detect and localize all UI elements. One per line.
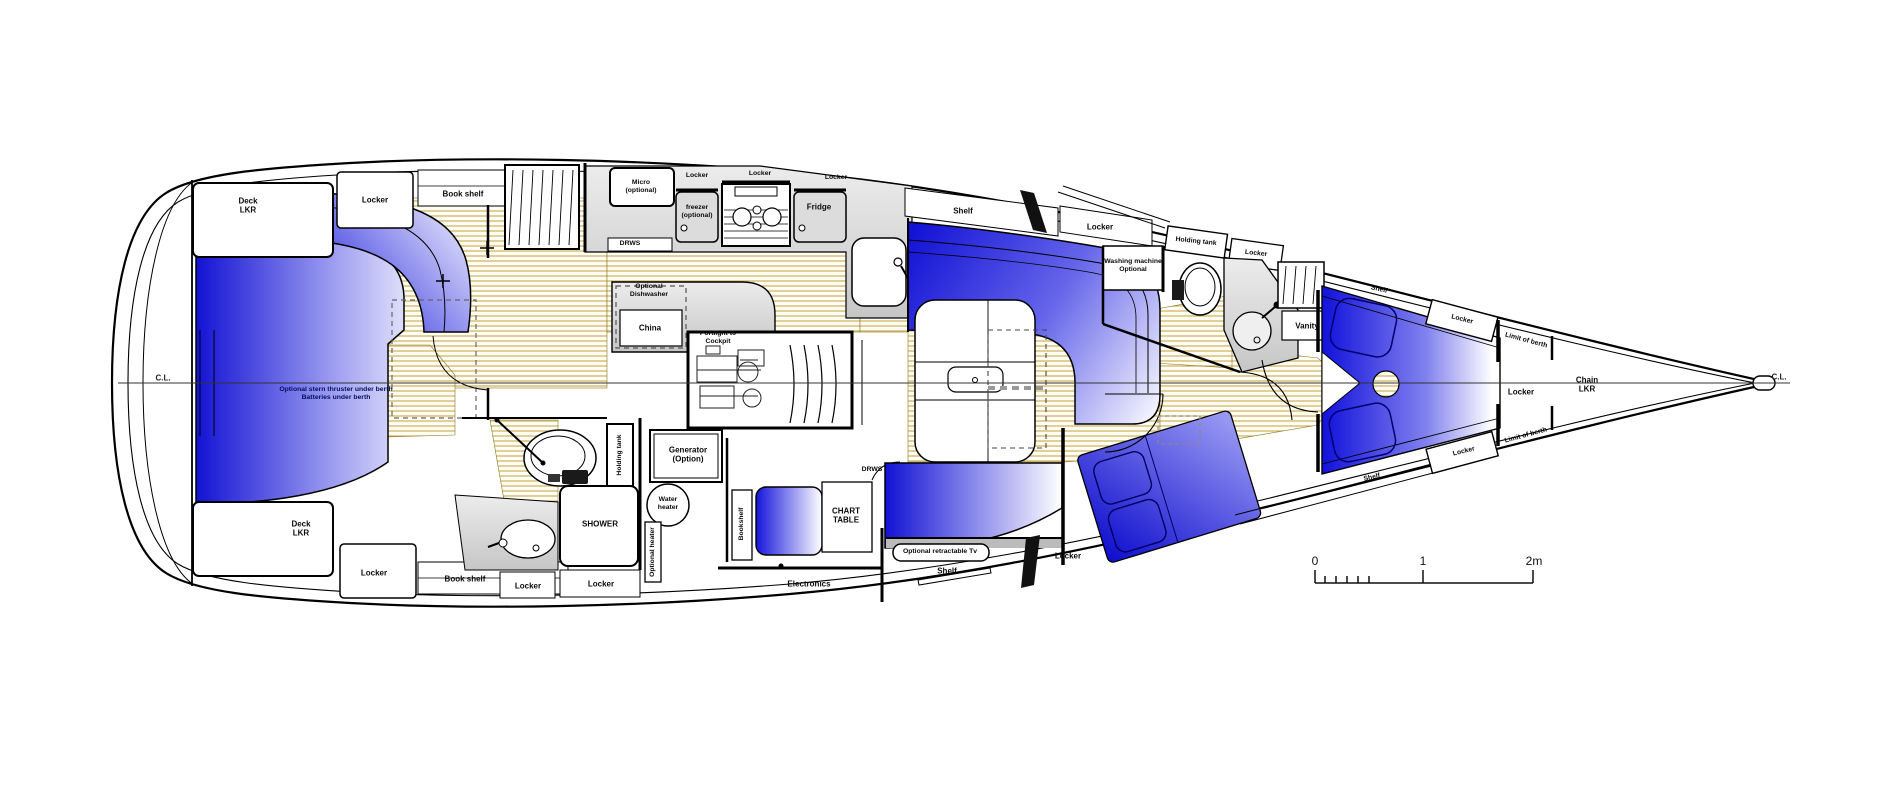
- locker-box: [560, 570, 640, 597]
- yacht-interior-plan: Deck LKR Locker Book shelf Optional ster…: [0, 0, 1900, 800]
- deck-locker-top-box: [193, 183, 333, 257]
- head-sink: [501, 520, 555, 558]
- chart-table-box: [822, 482, 872, 552]
- scale-bar: [1315, 570, 1533, 583]
- microwave: [610, 168, 674, 206]
- galley-sink: [852, 238, 906, 306]
- drws-box: [608, 238, 672, 251]
- generator-box: [650, 430, 722, 482]
- pedestal: [1373, 371, 1399, 397]
- locker-top-box: [337, 172, 413, 228]
- washing-machine-box: [1103, 246, 1163, 290]
- fridge: [794, 192, 846, 242]
- china-box: [620, 310, 682, 346]
- shower-box: [560, 486, 638, 566]
- water-heater-circle: [647, 484, 689, 526]
- plan-drawing: [0, 0, 1900, 800]
- vanity-sink: [1233, 312, 1271, 350]
- nav-seat: [756, 487, 822, 555]
- locker-bottom-box: [340, 544, 416, 598]
- deck-locker-bottom-box: [193, 502, 333, 576]
- freezer: [676, 192, 718, 242]
- engine-companionway: [688, 332, 862, 428]
- locker-box: [500, 572, 555, 598]
- optional-heater-box: [645, 522, 661, 582]
- holding-tank-box: [607, 424, 633, 486]
- burner: [733, 208, 751, 226]
- burner: [763, 208, 781, 226]
- hanging-locker: [505, 165, 579, 249]
- bookshelf-box: [732, 490, 752, 560]
- tv-pill: [893, 544, 989, 561]
- stern-berth: [196, 240, 404, 504]
